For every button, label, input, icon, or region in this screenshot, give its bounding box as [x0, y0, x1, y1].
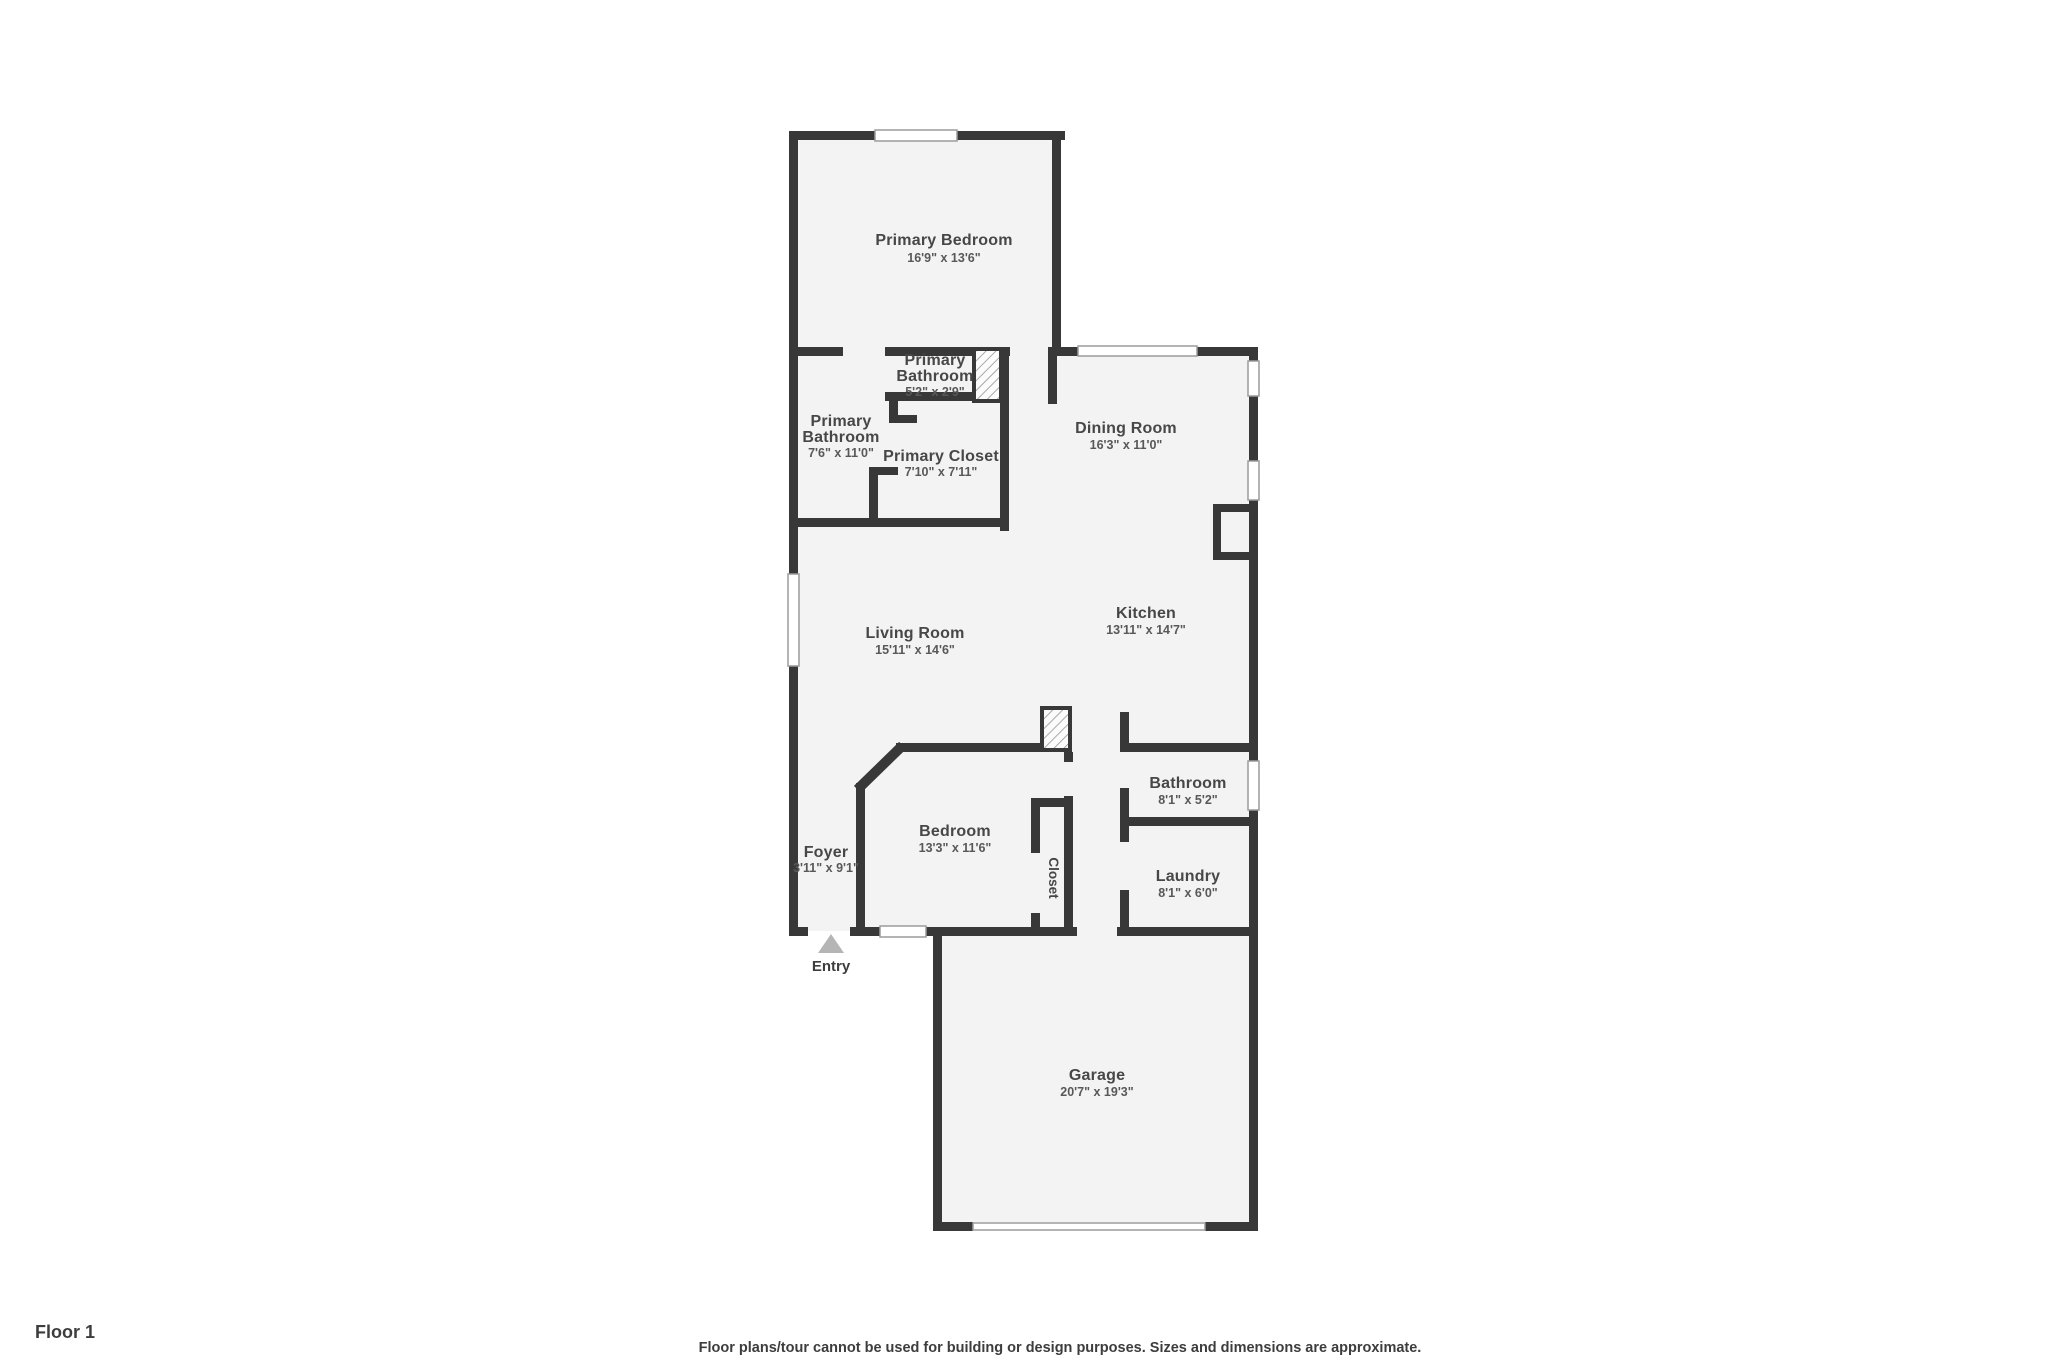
entry-label: Entry — [812, 958, 851, 975]
room-dims: 8'1" x 6'0" — [1158, 886, 1218, 900]
room-name: Garage — [1069, 1067, 1125, 1084]
room-name-line2: Bathroom — [896, 368, 973, 385]
room-name: Bedroom — [919, 823, 991, 840]
floor-areas — [793, 135, 1253, 1222]
window-dining-right-2 — [1248, 461, 1259, 500]
room-dims: 8'1" x 5'2" — [1158, 793, 1218, 807]
room-label-closet: Closet — [1046, 857, 1061, 899]
room-label-living-room: Living Room 15'11" x 14'6" — [865, 625, 964, 657]
room-name-line2: Bathroom — [802, 429, 879, 446]
room-label-bathroom: Bathroom 8'1" x 5'2" — [1149, 775, 1226, 807]
utility-hatch-block — [1040, 706, 1072, 752]
room-dims: 5'2" x 2'9" — [905, 385, 965, 399]
shower-hatch-block — [972, 347, 1003, 403]
room-name: Primary Closet — [883, 448, 999, 465]
room-name-line1: Primary — [905, 352, 966, 369]
room-label-kitchen: Kitchen 13'11" x 14'7" — [1106, 605, 1186, 637]
room-dims: 7'10" x 7'11" — [905, 465, 978, 479]
room-dims: 7'6" x 11'0" — [808, 446, 874, 460]
window-bathroom — [1248, 761, 1259, 810]
disclaimer-text: Floor plans/tour cannot be used for buil… — [699, 1340, 1422, 1356]
floor-label: Floor 1 — [35, 1322, 95, 1342]
utility-block-hatch — [1044, 710, 1068, 748]
garage-door — [973, 1223, 1205, 1230]
window-dining-top — [1078, 346, 1197, 356]
room-dims: 16'3" x 11'0" — [1090, 438, 1163, 452]
room-dims: 3'11" x 9'1" — [793, 861, 859, 875]
floor-plan-page: Entry Primary Bedroom 16'9" x 13'6" Prim… — [0, 0, 2048, 1365]
room-dims: 13'3" x 11'6" — [919, 841, 992, 855]
room-dims: 20'7" x 19'3" — [1060, 1085, 1133, 1099]
room-label-garage: Garage 20'7" x 19'3" — [1060, 1067, 1133, 1099]
room-name: Dining Room — [1075, 420, 1177, 437]
room-name: Living Room — [865, 625, 964, 642]
room-name: Laundry — [1156, 868, 1221, 885]
entry-arrow-icon — [818, 934, 844, 953]
room-label-primary-bathroom-small: Primary Bathroom 5'2" x 2'9" — [896, 352, 973, 399]
window-bedroom — [880, 926, 926, 937]
room-dims: 16'9" x 13'6" — [907, 251, 980, 265]
window-living-room — [788, 574, 799, 666]
room-label-laundry: Laundry 8'1" x 6'0" — [1156, 868, 1221, 900]
room-name: Kitchen — [1116, 605, 1176, 622]
floor-plan-canvas: Entry Primary Bedroom 16'9" x 13'6" Prim… — [0, 0, 2048, 1365]
window-primary-bedroom — [875, 130, 957, 141]
entry-marker: Entry — [812, 934, 851, 975]
room-name: Closet — [1046, 857, 1061, 899]
room-dims: 13'11" x 14'7" — [1106, 623, 1186, 637]
room-name: Bathroom — [1149, 775, 1226, 792]
window-dining-right-1 — [1248, 361, 1259, 396]
room-dims: 15'11" x 14'6" — [875, 643, 955, 657]
room-label-bedroom: Bedroom 13'3" x 11'6" — [919, 823, 992, 855]
room-label-primary-bathroom: Primary Bathroom 7'6" x 11'0" — [802, 413, 879, 460]
room-name: Foyer — [804, 844, 849, 861]
room-label-dining-room: Dining Room 16'3" x 11'0" — [1075, 420, 1177, 452]
room-name-line1: Primary — [811, 413, 872, 430]
shower-block-hatch — [976, 351, 999, 399]
room-name: Primary Bedroom — [875, 232, 1012, 249]
